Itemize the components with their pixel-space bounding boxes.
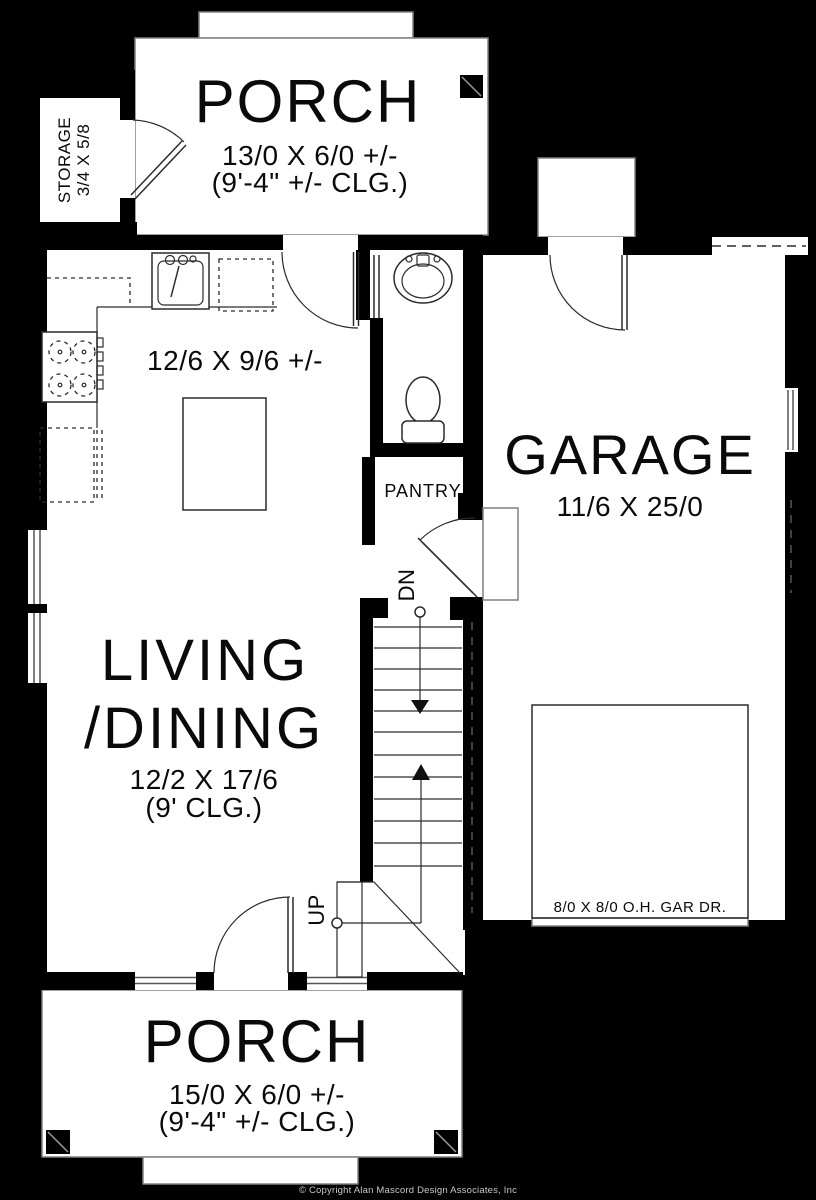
living-label-line1: LIVING	[101, 628, 309, 693]
svg-text:UP: UP	[304, 894, 329, 926]
svg-text:3/4 X 5/8: 3/4 X 5/8	[74, 124, 93, 197]
garage-floor	[483, 255, 785, 920]
up-label: UP	[304, 894, 329, 926]
front-door-opening	[214, 972, 288, 990]
copyright-text: © Copyright Alan Mascord Design Associat…	[299, 1185, 517, 1196]
garage-door-threshold	[532, 918, 748, 926]
garage-window-recess	[785, 388, 798, 452]
living-clg: (9' CLG.)	[145, 792, 262, 823]
kitchen-island	[183, 398, 266, 510]
garage-side-door-opening	[548, 237, 623, 255]
garage-dim: 11/6 X 25/0	[557, 491, 704, 522]
porch-door-opening	[283, 235, 358, 250]
bottom-porch-column-right	[434, 1130, 458, 1154]
garage-label: GARAGE	[504, 423, 756, 486]
svg-text:DN: DN	[394, 569, 419, 602]
stair-landing-closet	[483, 508, 518, 600]
bottom-porch-clg: (9'-4" +/- CLG.)	[159, 1106, 356, 1137]
svg-text:STORAGE: STORAGE	[55, 117, 74, 203]
garage-door-label: 8/0 X 8/0 O.H. GAR DR.	[554, 899, 727, 916]
floor-plan-drawing: PORCH 13/0 X 6/0 +/- (9'-4" +/- CLG.) ST…	[0, 0, 816, 1200]
storage-door-opening	[120, 120, 135, 198]
top-porch-label: PORCH	[195, 68, 422, 135]
bottom-porch-label: PORCH	[144, 1008, 371, 1075]
kitchen-sink	[152, 253, 209, 309]
toilet	[402, 377, 444, 443]
top-porch-column	[460, 75, 483, 98]
storage-label: STORAGE 3/4 X 5/8	[55, 117, 93, 203]
stove	[42, 332, 103, 402]
garage-stoop	[538, 158, 635, 237]
living-label-line2: /DINING	[84, 696, 324, 761]
top-porch-clg: (9'-4" +/- CLG.)	[212, 167, 409, 198]
pedestal-sink	[394, 253, 452, 303]
pantry-label: PANTRY	[384, 481, 461, 501]
living-dim: 12/2 X 17/6	[130, 764, 279, 795]
dn-label: DN	[394, 569, 419, 602]
bottom-porch-steps	[143, 1157, 358, 1184]
kitchen-dim: 12/6 X 9/6 +/-	[147, 345, 323, 376]
floor-plan-page: PORCH 13/0 X 6/0 +/- (9'-4" +/- CLG.) ST…	[0, 0, 816, 1200]
top-porch-steps	[199, 12, 413, 38]
bottom-porch-column-left	[46, 1130, 70, 1154]
